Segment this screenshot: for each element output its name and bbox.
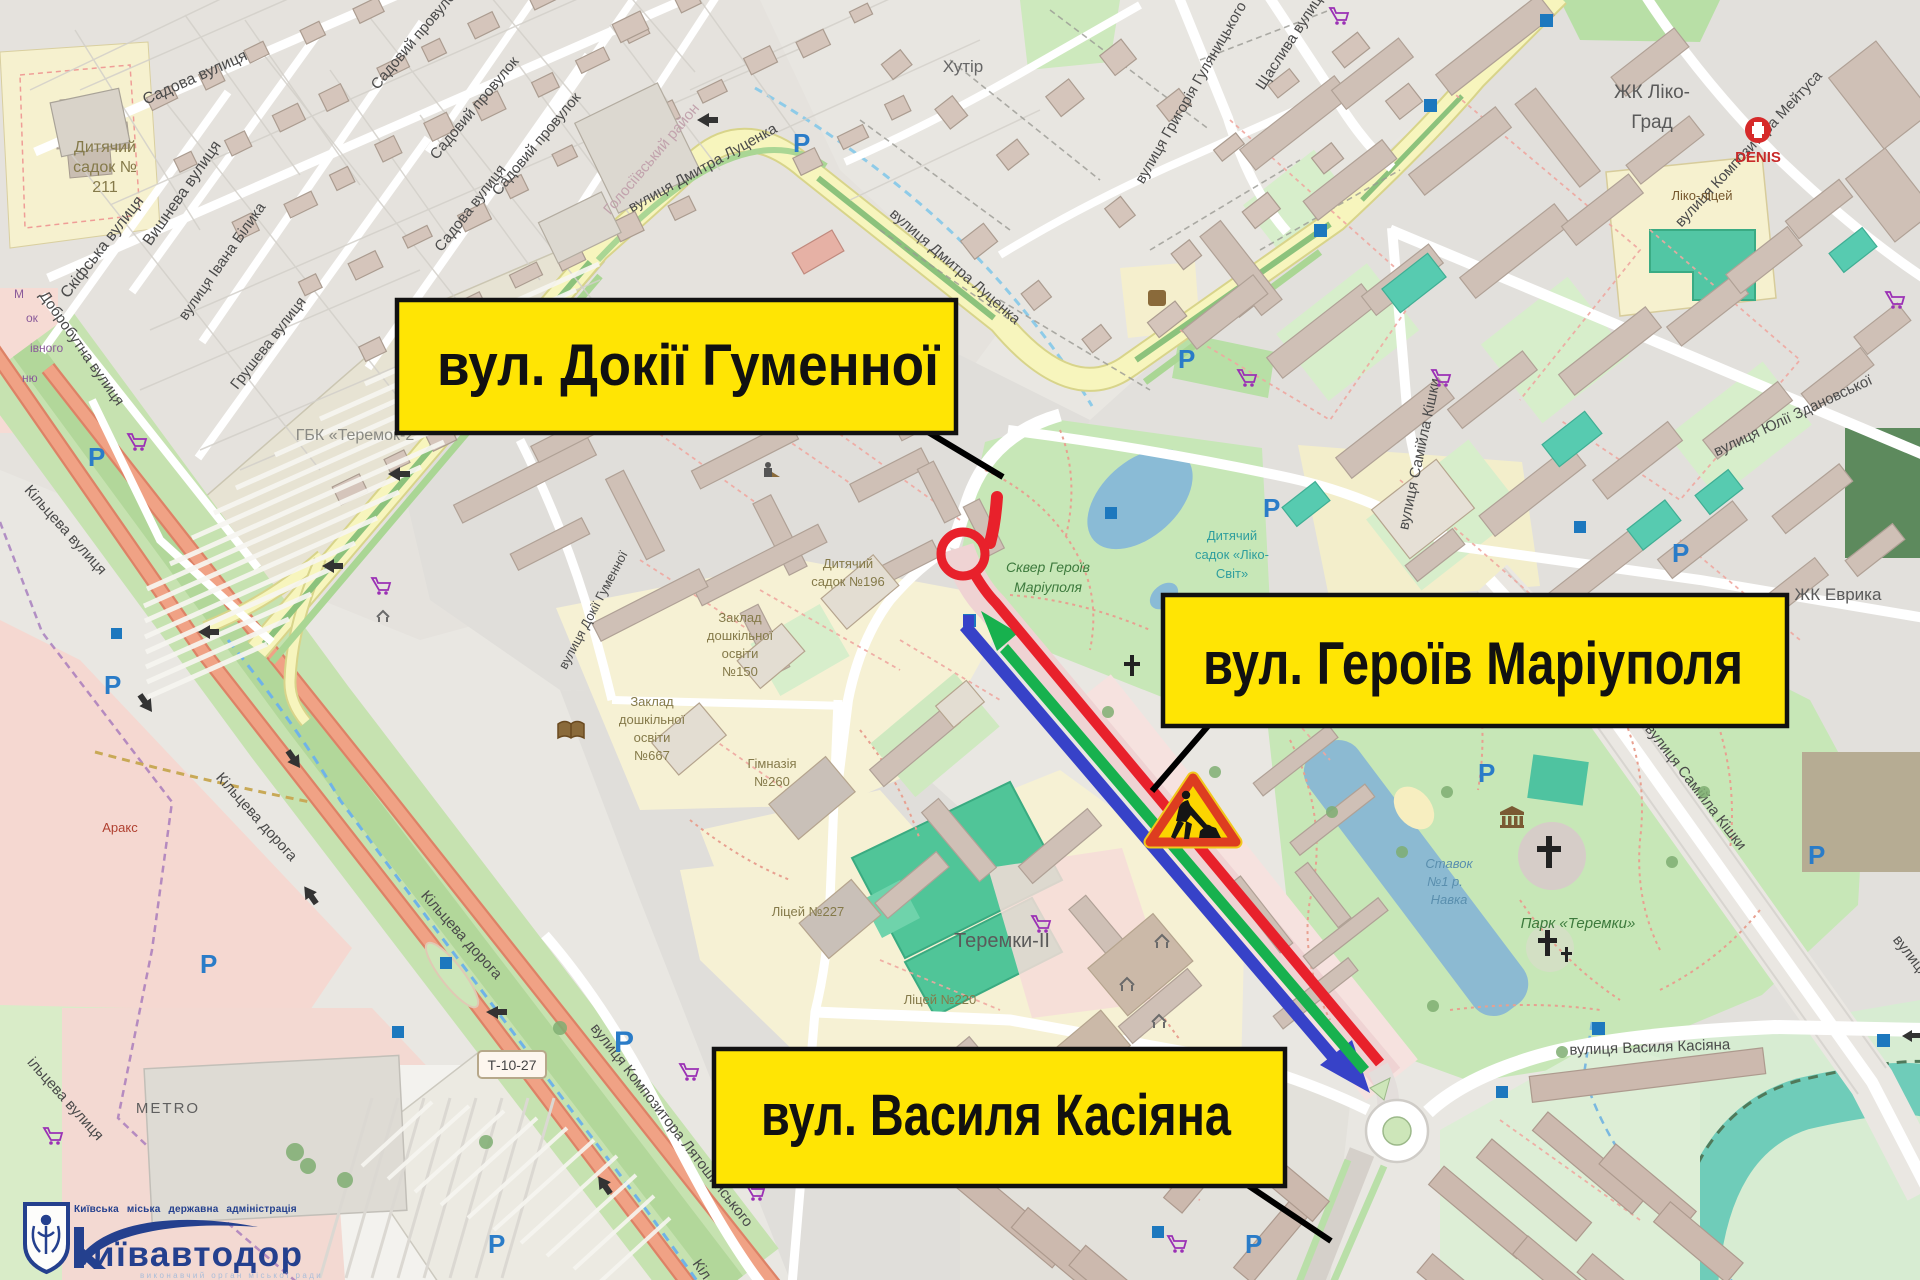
- svg-text:Град: Град: [1631, 112, 1672, 133]
- svg-text:Київська міська державна адмін: Київська міська державна адміністрація: [74, 1204, 297, 1215]
- svg-text:№150: №150: [722, 664, 758, 679]
- svg-text:P: P: [104, 670, 121, 700]
- svg-text:освіти: освіти: [634, 730, 671, 745]
- svg-text:Ставок: Ставок: [1425, 856, 1473, 871]
- svg-text:Хутір: Хутір: [943, 57, 983, 76]
- svg-text:иївавтодор: иївавтодор: [93, 1235, 304, 1274]
- svg-text:Дитячий: Дитячий: [823, 556, 873, 571]
- svg-text:P: P: [1263, 493, 1280, 523]
- svg-text:Сквер Героїв: Сквер Героїв: [1006, 559, 1090, 575]
- svg-text:М: М: [14, 287, 24, 301]
- svg-text:дошкільної: дошкільної: [707, 628, 774, 643]
- svg-text:P: P: [1478, 758, 1495, 788]
- svg-text:дошкільної: дошкільної: [619, 712, 686, 727]
- svg-text:Ліко-ліцей: Ліко-ліцей: [1671, 188, 1732, 203]
- svg-text:METRO: METRO: [136, 1100, 200, 1117]
- svg-text:211: 211: [92, 179, 118, 196]
- svg-text:ню: ню: [22, 371, 38, 385]
- svg-text:Навка: Навка: [1431, 892, 1468, 907]
- svg-text:Дитячий: Дитячий: [1207, 528, 1257, 543]
- svg-text:садок №196: садок №196: [811, 574, 884, 589]
- svg-text:вул. Докії Гуменної: вул. Докії Гуменної: [437, 333, 941, 398]
- svg-text:Ліцей №227: Ліцей №227: [772, 904, 844, 919]
- svg-text:івного: івного: [30, 341, 63, 355]
- svg-text:№667: №667: [634, 748, 670, 763]
- svg-text:Заклад: Заклад: [718, 610, 762, 625]
- svg-text:Парк «Теремки»: Парк «Теремки»: [1521, 915, 1636, 932]
- svg-text:вул. Василя Касіяна: вул. Василя Касіяна: [761, 1083, 1232, 1148]
- svg-text:DENIS: DENIS: [1735, 149, 1781, 166]
- svg-text:№260: №260: [754, 774, 790, 789]
- svg-text:виконавчий орган міської ради: виконавчий орган міської ради: [140, 1271, 323, 1280]
- svg-text:вул. Героїв Маріуполя: вул. Героїв Маріуполя: [1203, 630, 1743, 697]
- svg-text:Заклад: Заклад: [630, 694, 674, 709]
- svg-text:P: P: [1808, 840, 1825, 870]
- svg-text:садок №: садок №: [73, 159, 137, 176]
- svg-text:P: P: [1672, 538, 1689, 568]
- svg-text:Теремки-ІІ: Теремки-ІІ: [954, 930, 1050, 952]
- svg-text:P: P: [614, 1026, 634, 1059]
- svg-text:ЖК Ліко-: ЖК Ліко-: [1614, 82, 1690, 103]
- svg-text:садок «Ліко-: садок «Ліко-: [1195, 547, 1269, 562]
- svg-text:ок: ок: [26, 311, 39, 325]
- svg-text:P: P: [793, 128, 810, 158]
- svg-text:P: P: [1245, 1229, 1262, 1259]
- svg-text:Світ»: Світ»: [1216, 566, 1248, 581]
- svg-text:Т-10-27: Т-10-27: [487, 1057, 536, 1073]
- svg-text:P: P: [488, 1229, 505, 1259]
- svg-text:P: P: [88, 442, 105, 472]
- svg-text:Маріуполя: Маріуполя: [1014, 579, 1083, 595]
- svg-text:Аракс: Аракс: [102, 820, 138, 835]
- svg-text:ЖК Еврика: ЖК Еврика: [1795, 585, 1882, 604]
- svg-text:Дитячий: Дитячий: [74, 139, 136, 156]
- svg-text:Ліцей №220: Ліцей №220: [904, 992, 976, 1007]
- svg-text:P: P: [200, 949, 217, 979]
- svg-text:P: P: [1178, 344, 1195, 374]
- svg-text:Гімназія: Гімназія: [747, 756, 796, 771]
- svg-text:освіти: освіти: [722, 646, 759, 661]
- svg-text:№1 р.: №1 р.: [1427, 874, 1463, 889]
